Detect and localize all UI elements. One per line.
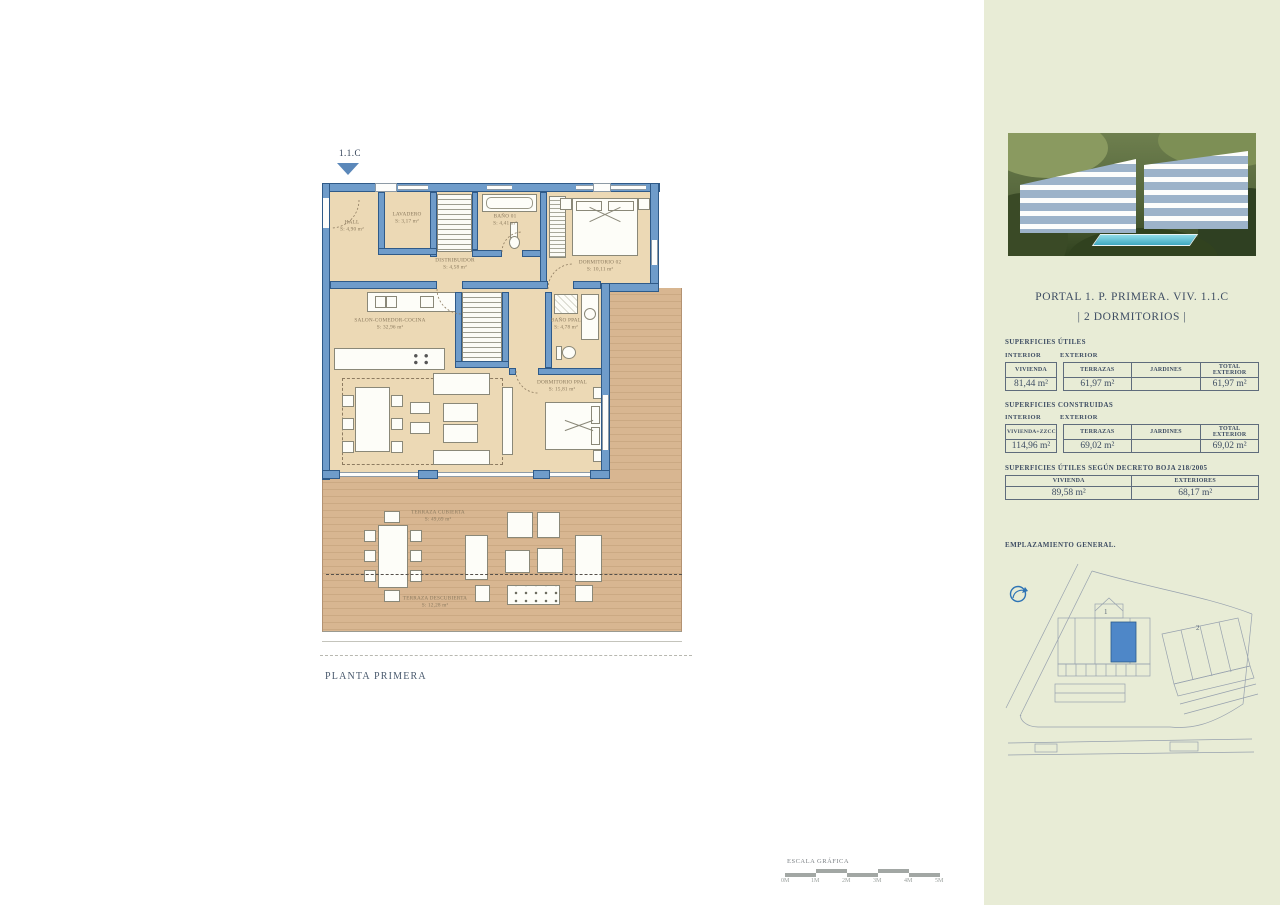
brochure-page: 1.1.C: [0, 0, 1280, 905]
door-arc: [516, 371, 538, 393]
building-photo: [1008, 133, 1256, 256]
site-building-1-label: 1: [1104, 608, 1108, 616]
col-value: 68,17 m²: [1132, 487, 1259, 500]
unit-title-line2: | 2 DORMITORIOS |: [984, 308, 1280, 328]
scale-tick: 4M: [904, 878, 912, 884]
scale-segment: [878, 869, 909, 873]
col-value: [1131, 440, 1201, 453]
section-heading-boja: SUPERFICIES ÚTILES SEGÚN DECRETO BOJA 21…: [1005, 464, 1207, 472]
interior-label: INTERIOR: [1005, 352, 1041, 359]
floor-plan: HALL S: 4,90 m² LAVADERO S: 3,17 m² BAÑO…: [320, 150, 692, 695]
interior-label: INTERIOR: [1005, 414, 1041, 421]
col-header: TOTAL EXTERIOR: [1201, 425, 1259, 440]
boja-table-inner: VIVIENDA EXTERIORES 89,58 m² 68,17 m²: [1005, 475, 1259, 500]
site-boundary: [1092, 571, 1252, 614]
col-header: JARDINES: [1131, 363, 1201, 378]
col-header: VIVIENDA: [1006, 363, 1056, 378]
construidas-table: VIVIENDA+ZZCC 114,96 m² TERRAZAS JARDINE…: [1005, 424, 1259, 453]
col-header: TERRAZAS: [1064, 425, 1132, 440]
scale-segment: [785, 873, 816, 877]
col-header: EXTERIORES: [1132, 476, 1259, 487]
col-value: 89,58 m²: [1006, 487, 1132, 500]
site-building-2-terraces: [1174, 666, 1254, 696]
compass-icon: [1011, 587, 1029, 602]
site-building-2-lines: [1181, 622, 1231, 680]
col-value: 69,02 m²: [1064, 440, 1132, 453]
col-header: JARDINES: [1131, 425, 1201, 440]
col-value: 69,02 m²: [1201, 440, 1259, 453]
site-building-2-label: 2: [1196, 624, 1200, 632]
door-arc: [331, 200, 359, 228]
site-building-1-roof: [1095, 604, 1123, 618]
photo-pool: [1092, 234, 1198, 246]
construidas-interior-box: VIVIENDA+ZZCC 114,96 m²: [1005, 424, 1057, 453]
utiles-interior-box: VIVIENDA 81,44 m²: [1005, 362, 1057, 391]
col-value: 81,44 m²: [1006, 378, 1056, 390]
exterior-label: EXTERIOR: [1060, 414, 1098, 421]
section-heading-construidas: SUPERFICIES CONSTRUIDAS: [1005, 401, 1113, 409]
site-road: [1020, 571, 1092, 716]
highlighted-unit: [1111, 622, 1136, 662]
section-heading-utiles: SUPERFICIES ÚTILES: [1005, 338, 1086, 346]
utiles-table: VIVIENDA 81,44 m² TERRAZAS JARDINES TOTA…: [1005, 362, 1259, 391]
graphic-scale: ESCALA GRÁFICA 0M 1M 2M 3M 4M 5M: [783, 858, 945, 888]
door-arc: [437, 289, 462, 314]
scale-tick: 2M: [842, 878, 850, 884]
col-header: TERRAZAS: [1064, 363, 1132, 378]
exterior-label: EXTERIOR: [1060, 352, 1098, 359]
info-sidebar: PORTAL 1. P. PRIMERA. VIV. 1.1.C | 2 DOR…: [984, 0, 1280, 905]
col-value: 114,96 m²: [1006, 440, 1056, 452]
boja-table: VIVIENDA EXTERIORES 89,58 m² 68,17 m²: [1005, 475, 1259, 500]
site-plan: 1 2: [1000, 556, 1264, 768]
scale-tick: 3M: [873, 878, 881, 884]
site-building-1-roof-peak: [1095, 598, 1123, 611]
scale-segment: [847, 873, 878, 877]
photo-building-right: [1144, 151, 1248, 229]
site-car: [1035, 744, 1057, 752]
scale-tick: 5M: [935, 878, 943, 884]
site-terrace-lines: [1066, 664, 1136, 676]
scale-tick: 0M: [781, 878, 789, 884]
scale-tick: 1M: [811, 878, 819, 884]
site-car: [1170, 742, 1198, 751]
col-value: 61,97 m²: [1064, 378, 1132, 391]
col-value: 61,97 m²: [1201, 378, 1259, 391]
col-header: VIVIENDA: [1006, 476, 1132, 487]
unit-title: PORTAL 1. P. PRIMERA. VIV. 1.1.C | 2 DOR…: [984, 288, 1280, 327]
site-road: [1008, 739, 1252, 743]
construidas-exterior-table: TERRAZAS JARDINES TOTAL EXTERIOR 69,02 m…: [1063, 424, 1259, 453]
scale-label: ESCALA GRÁFICA: [787, 858, 849, 865]
door-arcs-overlay: [320, 150, 692, 695]
section-heading-emplazamiento: EMPLAZAMIENTO GENERAL.: [1005, 541, 1116, 549]
unit-title-line1: PORTAL 1. P. PRIMERA. VIV. 1.1.C: [984, 288, 1280, 308]
col-value: [1131, 378, 1201, 391]
col-header: VIVIENDA+ZZCC: [1006, 425, 1056, 440]
site-road: [1006, 564, 1078, 708]
scale-segment: [816, 869, 847, 873]
site-road: [1008, 752, 1254, 755]
door-arc: [548, 264, 573, 289]
scale-segment: [909, 873, 940, 877]
col-header: TOTAL EXTERIOR: [1201, 363, 1259, 378]
site-building-2-rows: [1180, 684, 1258, 714]
door-arc: [502, 232, 522, 252]
utiles-exterior-table: TERRAZAS JARDINES TOTAL EXTERIOR 61,97 m…: [1063, 362, 1259, 391]
